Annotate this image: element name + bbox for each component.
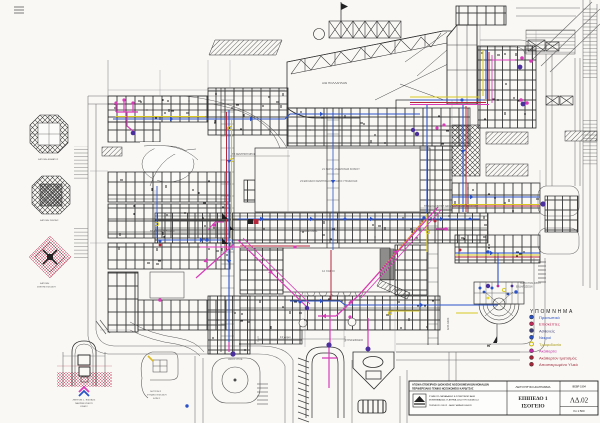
svg-text:ΛΔ.02: ΛΔ.02 bbox=[570, 397, 589, 405]
svg-text:ΙΣΟΓΕΙΟ: ΙΣΟΓΕΙΟ bbox=[521, 404, 544, 410]
svg-text:ΤΘ ΚΕΝΤΡΙΚΗ ΜΠΛΕ: ΤΘ ΚΕΝΤΡΙΚΗ ΜΠΛΕ bbox=[232, 153, 256, 156]
svg-text:ΜΟΝΕΜΒΑΣΙΑΣ 27 ΑΘΗΝΑ 11522 ΤΗΛ: ΜΟΝΕΜΒΑΣΙΑΣ 27 ΑΘΗΝΑ 11522 ΤΗΛ 6400801-3 bbox=[429, 399, 479, 402]
svg-text:ΦΥΛΑΚΙΟ ΕΙΣΟΔΟΥ: ΦΥΛΑΚΙΟ ΕΙΣΟΔΟΥ bbox=[147, 394, 167, 397]
svg-text:ΧΩΡΟΣ ΥΠΟΔ: ΧΩΡΟΣ ΥΠΟΔ bbox=[228, 358, 243, 361]
svg-text:ΕΠΙΠΕΔΟ 1: ΕΠΙΠΕΔΟ 1 bbox=[518, 396, 547, 402]
svg-text:Προσωπικό: Προσωπικό bbox=[539, 315, 561, 320]
svg-text:ΕΚΔΗΛΩΣΕΩΝ: ΕΚΔΗΛΩΣΕΩΝ bbox=[516, 286, 533, 289]
svg-text:21 ΧΩΡΟΙ ΑΝΑΜΟΝΗΣ ΚΟΙΝΟΥ: 21 ΧΩΡΟΙ ΑΝΑΜΟΝΗΣ ΚΟΙΝΟΥ bbox=[322, 167, 360, 171]
svg-text:13 χώροι: 13 χώροι bbox=[280, 335, 291, 339]
svg-text:22 ΔΙΑΔΡΟΜΟΣ: 22 ΔΙΑΔΡΟΜΟΣ bbox=[300, 230, 318, 233]
svg-text:ΣΚΕΠΗΣ ΕΙΣΟΔΟΥ: ΣΚΕΠΗΣ ΕΙΣΟΔΟΥ bbox=[37, 286, 57, 289]
svg-text:23 ΕΙΣΟΔΟΣ ΚΕΝΤΡΙΚΗ ΚΑΙ ΧΩΡΟΙ: 23 ΕΙΣΟΔΟΣ ΚΕΝΤΡΙΚΗ ΚΑΙ ΧΩΡΟΙ ΥΠΟΔΟΧΗΣ bbox=[300, 179, 358, 183]
svg-text:ΤΘ ΕΣΩΤΕΡΙΚΗ ΟΔΟΣ: ΤΘ ΕΣΩΤΕΡΙΚΗ ΟΔΟΣ bbox=[150, 230, 175, 233]
svg-text:Νεκροί: Νεκροί bbox=[539, 335, 551, 340]
svg-text:Τροφοδοσία: Τροφοδοσία bbox=[539, 342, 562, 347]
svg-text:ΛΕΠΤΟΜ 2: ΛΕΠΤΟΜ 2 bbox=[150, 391, 162, 393]
svg-text:ΝΕΚΡΩΝ ΥΛΙΚΟΥ: ΝΕΚΡΩΝ ΥΛΙΚΟΥ bbox=[75, 403, 93, 405]
svg-text:ΚΛΙΜ 2: ΚΛΙΜ 2 bbox=[80, 406, 88, 408]
svg-text:ΑΙΘ ΠΟΛΛΑΠΛΩΝ: ΑΙΘ ΠΟΛΛΑΠΛΩΝ bbox=[322, 81, 347, 85]
svg-text:Αποστειρωμένο Υλικό: Αποστειρωμένο Υλικό bbox=[539, 362, 579, 367]
svg-text:ΤΘ ΜΕΣΑ ΚΙΝΗΣΗ ΟΔΟΥ ΔΙΕΡΧΟΜΕΝΟ: ΤΘ ΜΕΣΑ ΚΙΝΗΣΗ ΟΔΟΥ ΔΙΕΡΧΟΜΕΝΟ ΚΟΙΝΟΥ bbox=[424, 205, 478, 208]
svg-text:Ακάθαρτα: Ακάθαρτα bbox=[539, 349, 557, 354]
svg-text:12 ΧΩΡΟΙ: 12 ΧΩΡΟΙ bbox=[322, 269, 335, 273]
svg-text:ΤΕΧΝΙΚΟΣ ΟΙΚΟΣ - ΔΗΜ ΓΙΑΝΝΗΣ: ΤΕΧΝΙΚΟΣ ΟΙΚΟΣ - ΔΗΜ ΓΙΑΝΝΗΣ ΕΚΔΟΣ bbox=[429, 404, 473, 407]
svg-text:ΚΑΤΟΨΗ ΣΚΕΠΗΣ: ΚΑΤΟΨΗ ΣΚΕΠΗΣ bbox=[40, 219, 59, 222]
svg-text:Επισκέπτες: Επισκέπτες bbox=[539, 322, 560, 327]
svg-text:Ασθενείς: Ασθενείς bbox=[539, 328, 555, 333]
svg-text:ΑΓΩΝΙΑ ΕΠΙΧΕΙΡΗΣΗ ΔΙΟΙΚΗΣΗΣ ΝΟ: ΑΓΩΝΙΑ ΕΠΙΧΕΙΡΗΣΗ ΔΙΟΙΚΗΣΗΣ ΝΟΣΟΚΟΜΕΙΑΚΩ… bbox=[412, 384, 489, 387]
svg-text:ΗΓ: ΗΓ bbox=[487, 344, 491, 348]
svg-text:ΠΕΡΙΦΕΡΕΙΑΚΟ ΓΕΝΙΚΟ ΝΟΣΟΚΟΜΕΙΟ: ΠΕΡΙΦΕΡΕΙΑΚΟ ΓΕΝΙΚΟ ΝΟΣΟΚΟΜΕΙΟ ΚΑΡΔΙΤΣΑΣ bbox=[412, 387, 474, 390]
svg-text:ΚΛΙΜ 2: ΚΛΙΜ 2 bbox=[153, 398, 161, 400]
svg-text:ΛΕΙΤΟΥΡΓΙΚΟ ΔΙΑΓΡΑΜΜΑ: ΛΕΙΤΟΥΡΓΙΚΟ ΔΙΑΓΡΑΜΜΑ bbox=[516, 385, 551, 389]
svg-text:ΚΥΡΙΑ ΕΙΣΟΔΟΣ: ΚΥΡΙΑ ΕΙΣΟΔΟΣ bbox=[345, 339, 364, 342]
svg-text:ΦΕΒΡ 1994: ΦΕΒΡ 1994 bbox=[572, 385, 586, 389]
svg-text:ΣΥΜΒΟΥΛ ΠΑΠΑΔΑΚΗΣ Δ ΣΥΝΕΡΓΑΤΕΣ: ΣΥΜΒΟΥΛ ΠΑΠΑΔΑΚΗΣ Δ ΣΥΝΕΡΓΑΤΕΣ ΑΕΜ bbox=[429, 395, 475, 398]
svg-text:ΚΑΤΟΨΗ: ΚΑΤΟΨΗ bbox=[40, 282, 50, 285]
svg-text:Κλ 1:500: Κλ 1:500 bbox=[573, 409, 584, 413]
svg-text:ΙΕΡΑ ΟΔΟΣ: ΙΕΡΑ ΟΔΟΣ bbox=[447, 317, 450, 330]
svg-text:ΚΑΤΟΨΗ ΔΩΜΑΤΟΣ: ΚΑΤΟΨΗ ΔΩΜΑΤΟΣ bbox=[38, 158, 59, 161]
svg-text:ΛΕΠΤΟΜ 1 - ΕΙΣΟΔΟΣ: ΛΕΠΤΟΜ 1 - ΕΙΣΟΔΟΣ bbox=[73, 399, 96, 402]
svg-text:Ακάθαρτον Ιματισμός: Ακάθαρτον Ιματισμός bbox=[539, 355, 577, 360]
